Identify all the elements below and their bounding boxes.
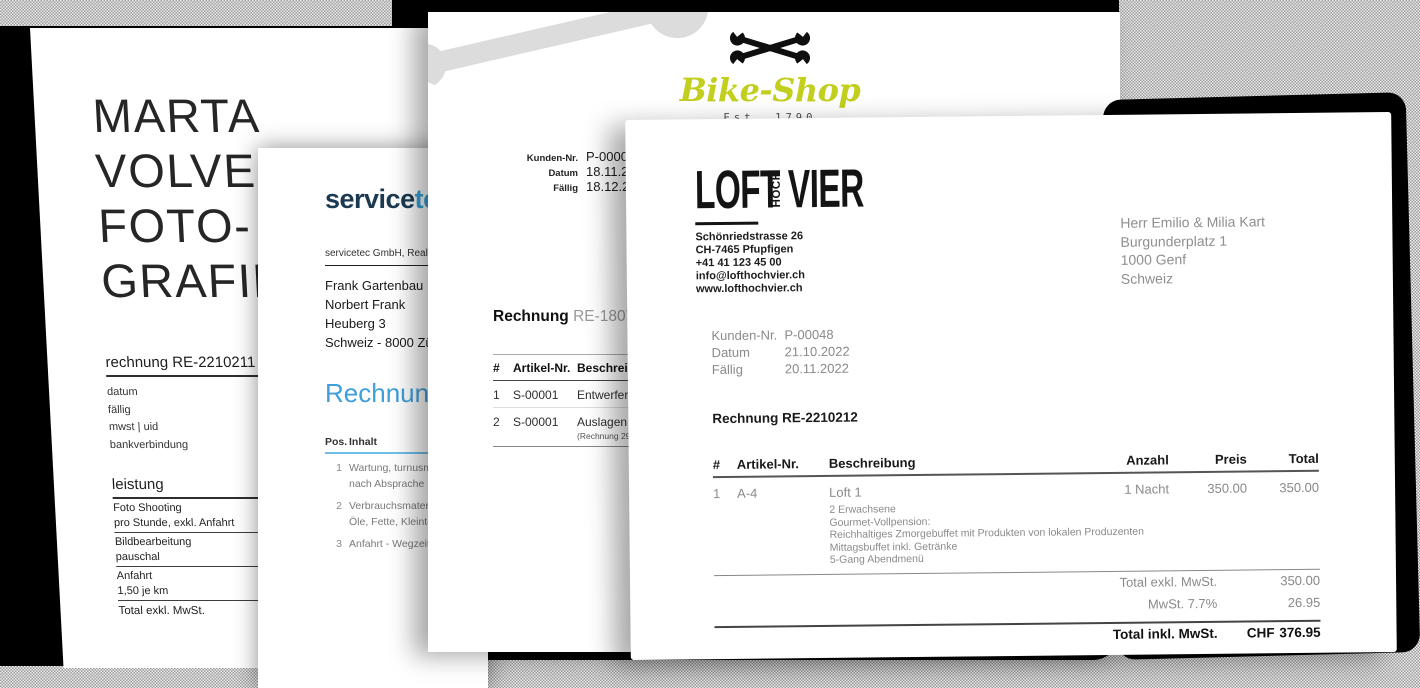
marta-invoice-meta-section: rechnung RE-2210211 datum fällig mwst | … xyxy=(105,354,282,454)
loft-items-table: # Artikel-Nr. Beschreibung Anzahl Preis … xyxy=(713,451,1321,650)
loft-rechnung-heading: Rechnung RE-2210212 xyxy=(712,410,858,427)
recipient-line: Schweiz xyxy=(1121,268,1266,288)
recipient-line: Burgunderplatz 1 xyxy=(1120,231,1265,251)
meta-value: P-00048 xyxy=(784,326,833,344)
total-currency xyxy=(1217,585,1274,586)
servicetec-rechnung-heading: Rechnung xyxy=(325,378,444,409)
row-article: S-00001 xyxy=(513,415,577,441)
row-description-details: 2 Erwachsene Gourmet-Vollpension: Reichh… xyxy=(829,499,1320,567)
row-content: Anfahrt - Wegzeit xyxy=(349,537,430,553)
row-num: 1 xyxy=(493,388,513,402)
bikeshop-logo-name: Bike-Shop xyxy=(665,71,875,109)
grand-total-value: 376.95 xyxy=(1275,624,1321,639)
meta-label: Fällig xyxy=(480,183,578,194)
total-value: 26.95 xyxy=(1274,594,1320,609)
meta-label: Kunden-Nr. xyxy=(711,326,784,344)
meta-row: Kunden-Nr. P-00048 xyxy=(711,326,849,344)
loft-sender-block: Schönriedstrasse 26 CH-7465 Pfupfigen +4… xyxy=(695,230,805,296)
sender-line: www.lofthochvier.ch xyxy=(696,282,805,296)
total-currency xyxy=(1217,607,1274,608)
col-total: Total xyxy=(1247,451,1319,468)
bikeshop-logo: Bike-Shop Est. 1790 xyxy=(665,26,875,124)
marta-title-line: MARTA xyxy=(91,88,290,143)
sender-line: CH-7465 Pfupfigen xyxy=(695,243,804,257)
col-pos: Pos. xyxy=(325,436,349,448)
meta-label: Datum xyxy=(712,343,785,361)
col-qty: Anzahl xyxy=(1079,452,1169,469)
marta-field-label: mwst | uid xyxy=(108,419,281,437)
row-num: 1 xyxy=(713,485,737,502)
col-num: # xyxy=(493,361,513,375)
meta-label: Kunden-Nr. xyxy=(480,153,578,164)
row-total: 350.00 xyxy=(1247,479,1319,497)
loft-invoice-meta: Kunden-Nr. P-00048 Datum 21.10.2022 Fäll… xyxy=(711,326,850,378)
meta-row: Fällig 20.11.2022 xyxy=(712,360,850,378)
loft-logo-underline xyxy=(695,222,758,226)
loft-invoice-document: LOFT HOCH VIER Schönriedstrasse 26 CH-74… xyxy=(625,112,1397,660)
row-pos: 3 xyxy=(325,537,349,553)
meta-row: Datum 21.10.2022 xyxy=(712,343,850,361)
loft-recipient-block: Herr Emilio & Milia Kart Burgunderplatz … xyxy=(1120,212,1265,288)
marta-field-label: bankverbindung xyxy=(109,437,282,455)
sender-line: Schönriedstrasse 26 xyxy=(695,230,804,244)
col-num: # xyxy=(713,457,737,473)
row-line: Anfahrt - Wegzeit xyxy=(349,537,430,553)
servicetec-logo-part1: service xyxy=(325,184,415,214)
col-price: Preis xyxy=(1169,452,1247,469)
total-label: MwSt. 7.7% xyxy=(1148,595,1218,611)
table-header: # Artikel-Nr. Beschreibung Anzahl Preis … xyxy=(713,451,1319,478)
recipient-line: 1000 Genf xyxy=(1121,249,1266,269)
loft-hoch-text: HOCH xyxy=(771,171,783,207)
table-row: 1 A-4 Loft 1 1 Nacht 350.00 350.00 xyxy=(713,479,1319,502)
row-num: 2 xyxy=(493,415,513,441)
row-pos: 2 xyxy=(325,499,349,530)
meta-value: 21.10.2022 xyxy=(785,343,850,361)
sender-line: +41 41 123 45 00 xyxy=(696,256,805,270)
meta-label: Fällig xyxy=(712,360,785,378)
grand-total-label: Total inkl. MwSt. xyxy=(1113,625,1218,641)
bikeshop-rechnung-heading: Rechnung RE-1807 xyxy=(493,308,634,326)
marta-invoice-fields: datum fällig mwst | uid bankverbindung xyxy=(106,377,282,454)
loft-logo-word-hoch: HOCH xyxy=(768,170,786,208)
row-desc: Loft 1 xyxy=(829,481,1079,501)
heading-number: RE-1807 xyxy=(573,308,634,325)
meta-label: Datum xyxy=(480,168,578,179)
sender-line: info@lofthochvier.ch xyxy=(696,269,805,283)
col-desc: Beschreibung xyxy=(829,453,1079,472)
marta-field-label: fällig xyxy=(108,402,281,420)
marta-invoice-heading: rechnung RE-2210211 xyxy=(105,354,278,377)
total-label: Total exkl. MwSt. xyxy=(1119,573,1217,589)
row-pos: 1 xyxy=(325,461,349,492)
crossed-wrenches-icon xyxy=(724,26,816,70)
meta-value: 20.11.2022 xyxy=(785,360,849,378)
grand-total-currency: CHF xyxy=(1218,625,1275,641)
recipient-line: Herr Emilio & Milia Kart xyxy=(1120,212,1265,232)
col-inhalt: Inhalt xyxy=(349,436,377,448)
col-article: Artikel-Nr. xyxy=(513,361,577,375)
heading-word: Rechnung xyxy=(493,308,569,325)
row-article: S-00001 xyxy=(513,388,577,402)
total-value: 350.00 xyxy=(1274,572,1320,587)
row-article: A-4 xyxy=(737,484,829,502)
col-article: Artikel-Nr. xyxy=(737,456,829,473)
marta-field-label: datum xyxy=(107,384,280,402)
row-qty: 1 Nacht xyxy=(1079,480,1169,498)
row-price: 350.00 xyxy=(1169,480,1247,498)
loft-logo-word-vier: VIER xyxy=(788,162,864,217)
